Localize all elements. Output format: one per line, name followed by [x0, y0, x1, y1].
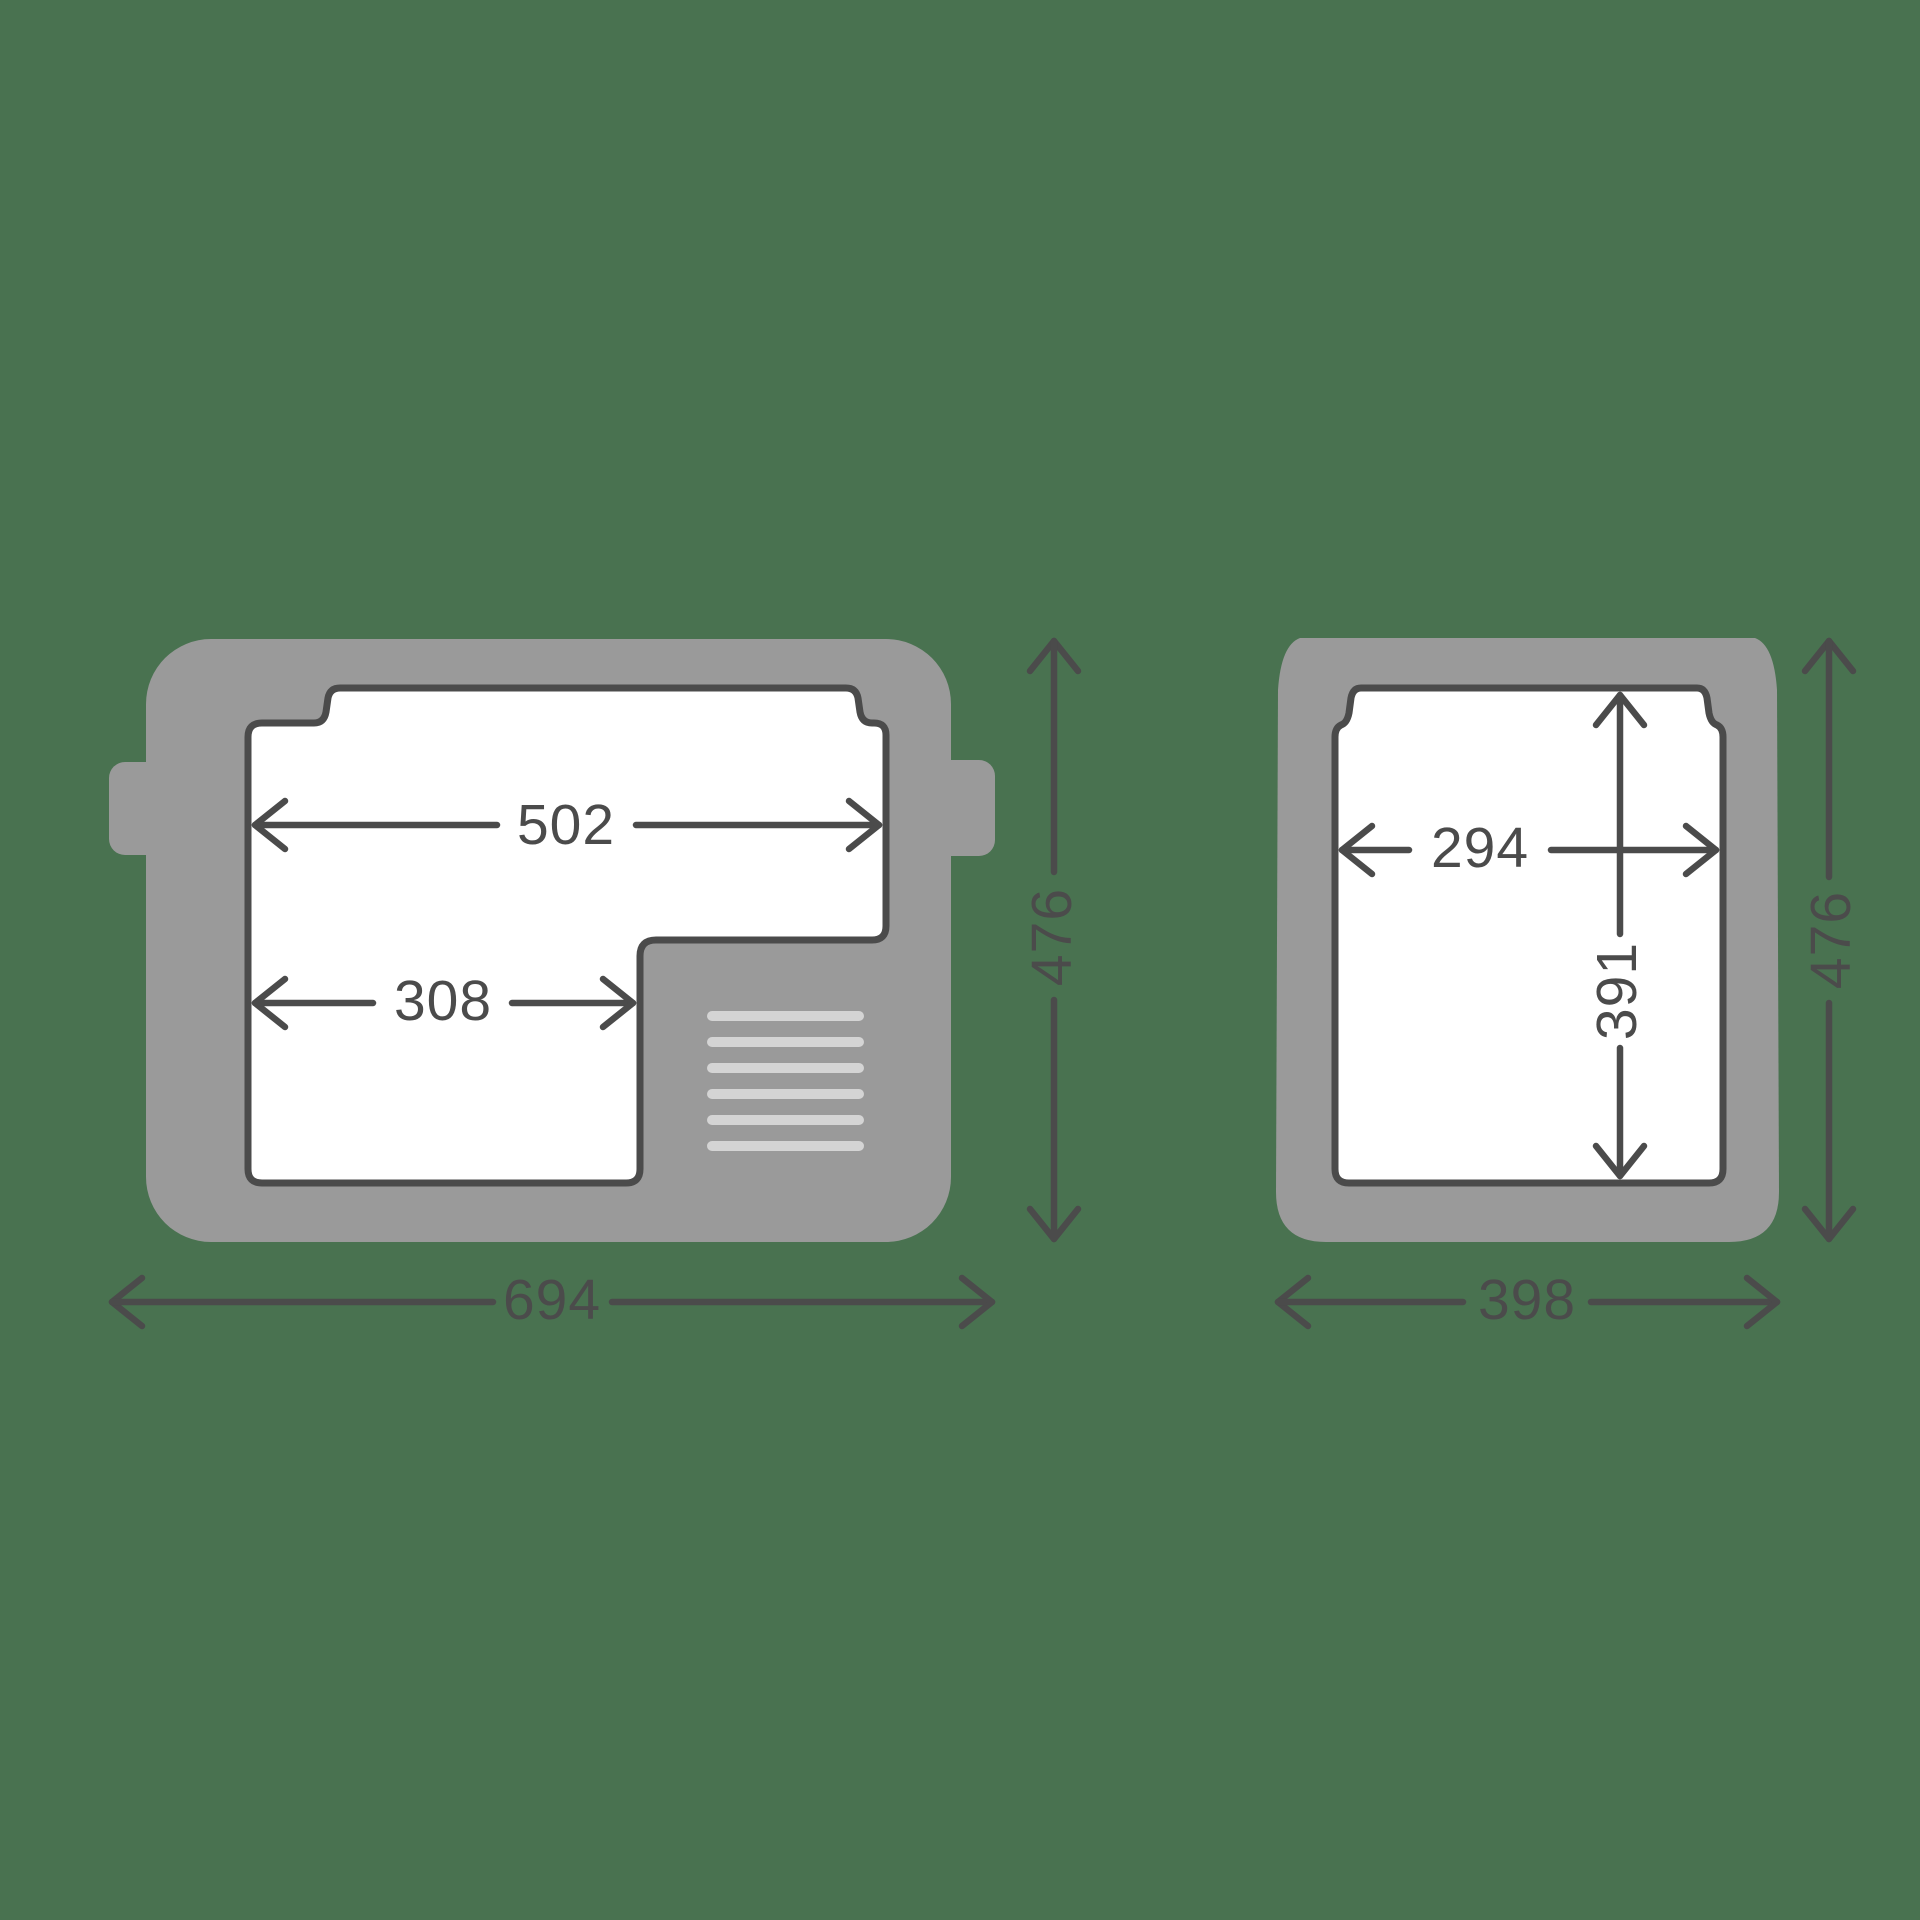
cooler-dimensions-diagram: 502 308 476 694: [0, 0, 1920, 1920]
vent-line: [707, 1141, 864, 1151]
vent-line: [707, 1011, 864, 1021]
dim-label-391: 391: [1585, 942, 1649, 1040]
front-view-lid-cutout: [1335, 688, 1723, 1183]
vent-line: [707, 1063, 864, 1073]
dim-label-308: 308: [394, 969, 492, 1033]
vent-line: [707, 1115, 864, 1125]
dim-label-398: 398: [1478, 1268, 1576, 1332]
vent-line: [707, 1089, 864, 1099]
dim-label-502: 502: [517, 793, 615, 857]
dim-label-476-right: 476: [1799, 891, 1863, 989]
dim-label-476-left: 476: [1020, 888, 1084, 986]
dim-label-694: 694: [503, 1268, 601, 1332]
vent-line: [707, 1037, 864, 1047]
dim-label-294: 294: [1431, 816, 1529, 880]
